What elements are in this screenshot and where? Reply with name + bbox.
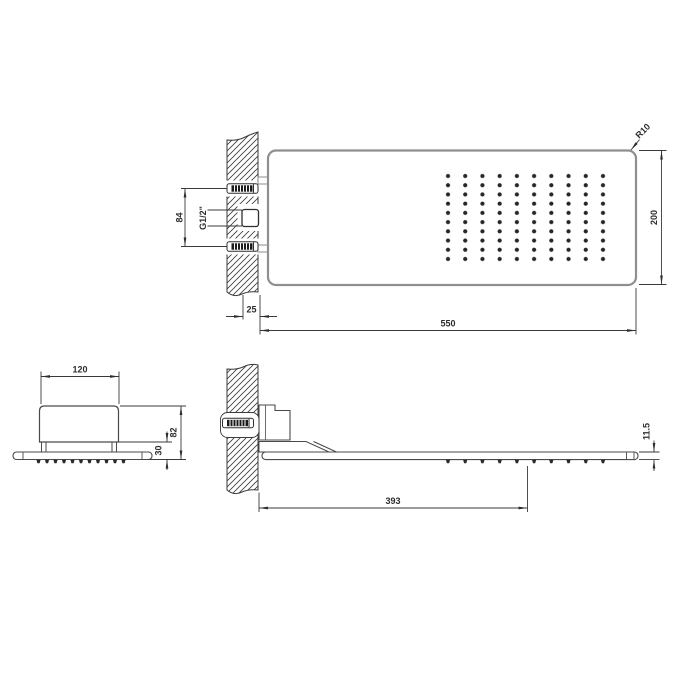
body-legs xyxy=(42,442,117,452)
technical-drawing-canvas: G1/2" 84 25 550 200 R xyxy=(0,0,700,700)
spray-plate-side xyxy=(262,452,638,460)
dim-width-label: 550 xyxy=(440,319,455,329)
dim-plate-drop xyxy=(119,432,172,471)
front-view: G1/2" 84 25 550 200 R xyxy=(175,122,667,335)
wall-anchor-screw xyxy=(227,184,258,194)
dim-projection-label: 393 xyxy=(385,496,400,506)
dim-height-label: 200 xyxy=(649,210,659,225)
side-view: 393 11.5 xyxy=(221,364,660,512)
mount-tab xyxy=(258,177,268,184)
dim-total-height-label: 82 xyxy=(169,427,179,437)
dim-wall-offset-label: 25 xyxy=(246,305,256,315)
water-inlet-g12 xyxy=(242,210,259,227)
dim-body-width-label: 120 xyxy=(72,365,87,375)
dim-plate-thickness-label: 11.5 xyxy=(642,423,652,440)
drawing-page: G1/2" 84 25 550 200 R xyxy=(0,0,700,700)
spray-plate-end xyxy=(13,452,152,460)
dim-corner-radius-label: R10 xyxy=(634,122,653,141)
mount-tab xyxy=(258,245,268,252)
nozzle-grid xyxy=(439,171,611,263)
bracket-arm xyxy=(259,442,329,453)
nozzle-row-end xyxy=(36,460,125,463)
shower-body-end xyxy=(40,406,119,442)
inlet-thread-label: G1/2" xyxy=(198,206,208,230)
dim-fixing-spacing-label: 84 xyxy=(175,212,185,222)
wall-anchor-screw xyxy=(223,418,254,428)
wall-anchor-screw xyxy=(227,242,258,252)
dim-body-width xyxy=(41,372,119,405)
dim-plate-drop-label: 30 xyxy=(154,445,164,455)
dim-plate-thickness xyxy=(639,441,660,472)
radius-leader xyxy=(631,140,640,151)
mounting-block xyxy=(259,405,290,440)
end-view: 120 82 xyxy=(13,365,186,471)
dim-wall-offset xyxy=(226,295,277,335)
nozzle-row-side xyxy=(446,460,605,463)
